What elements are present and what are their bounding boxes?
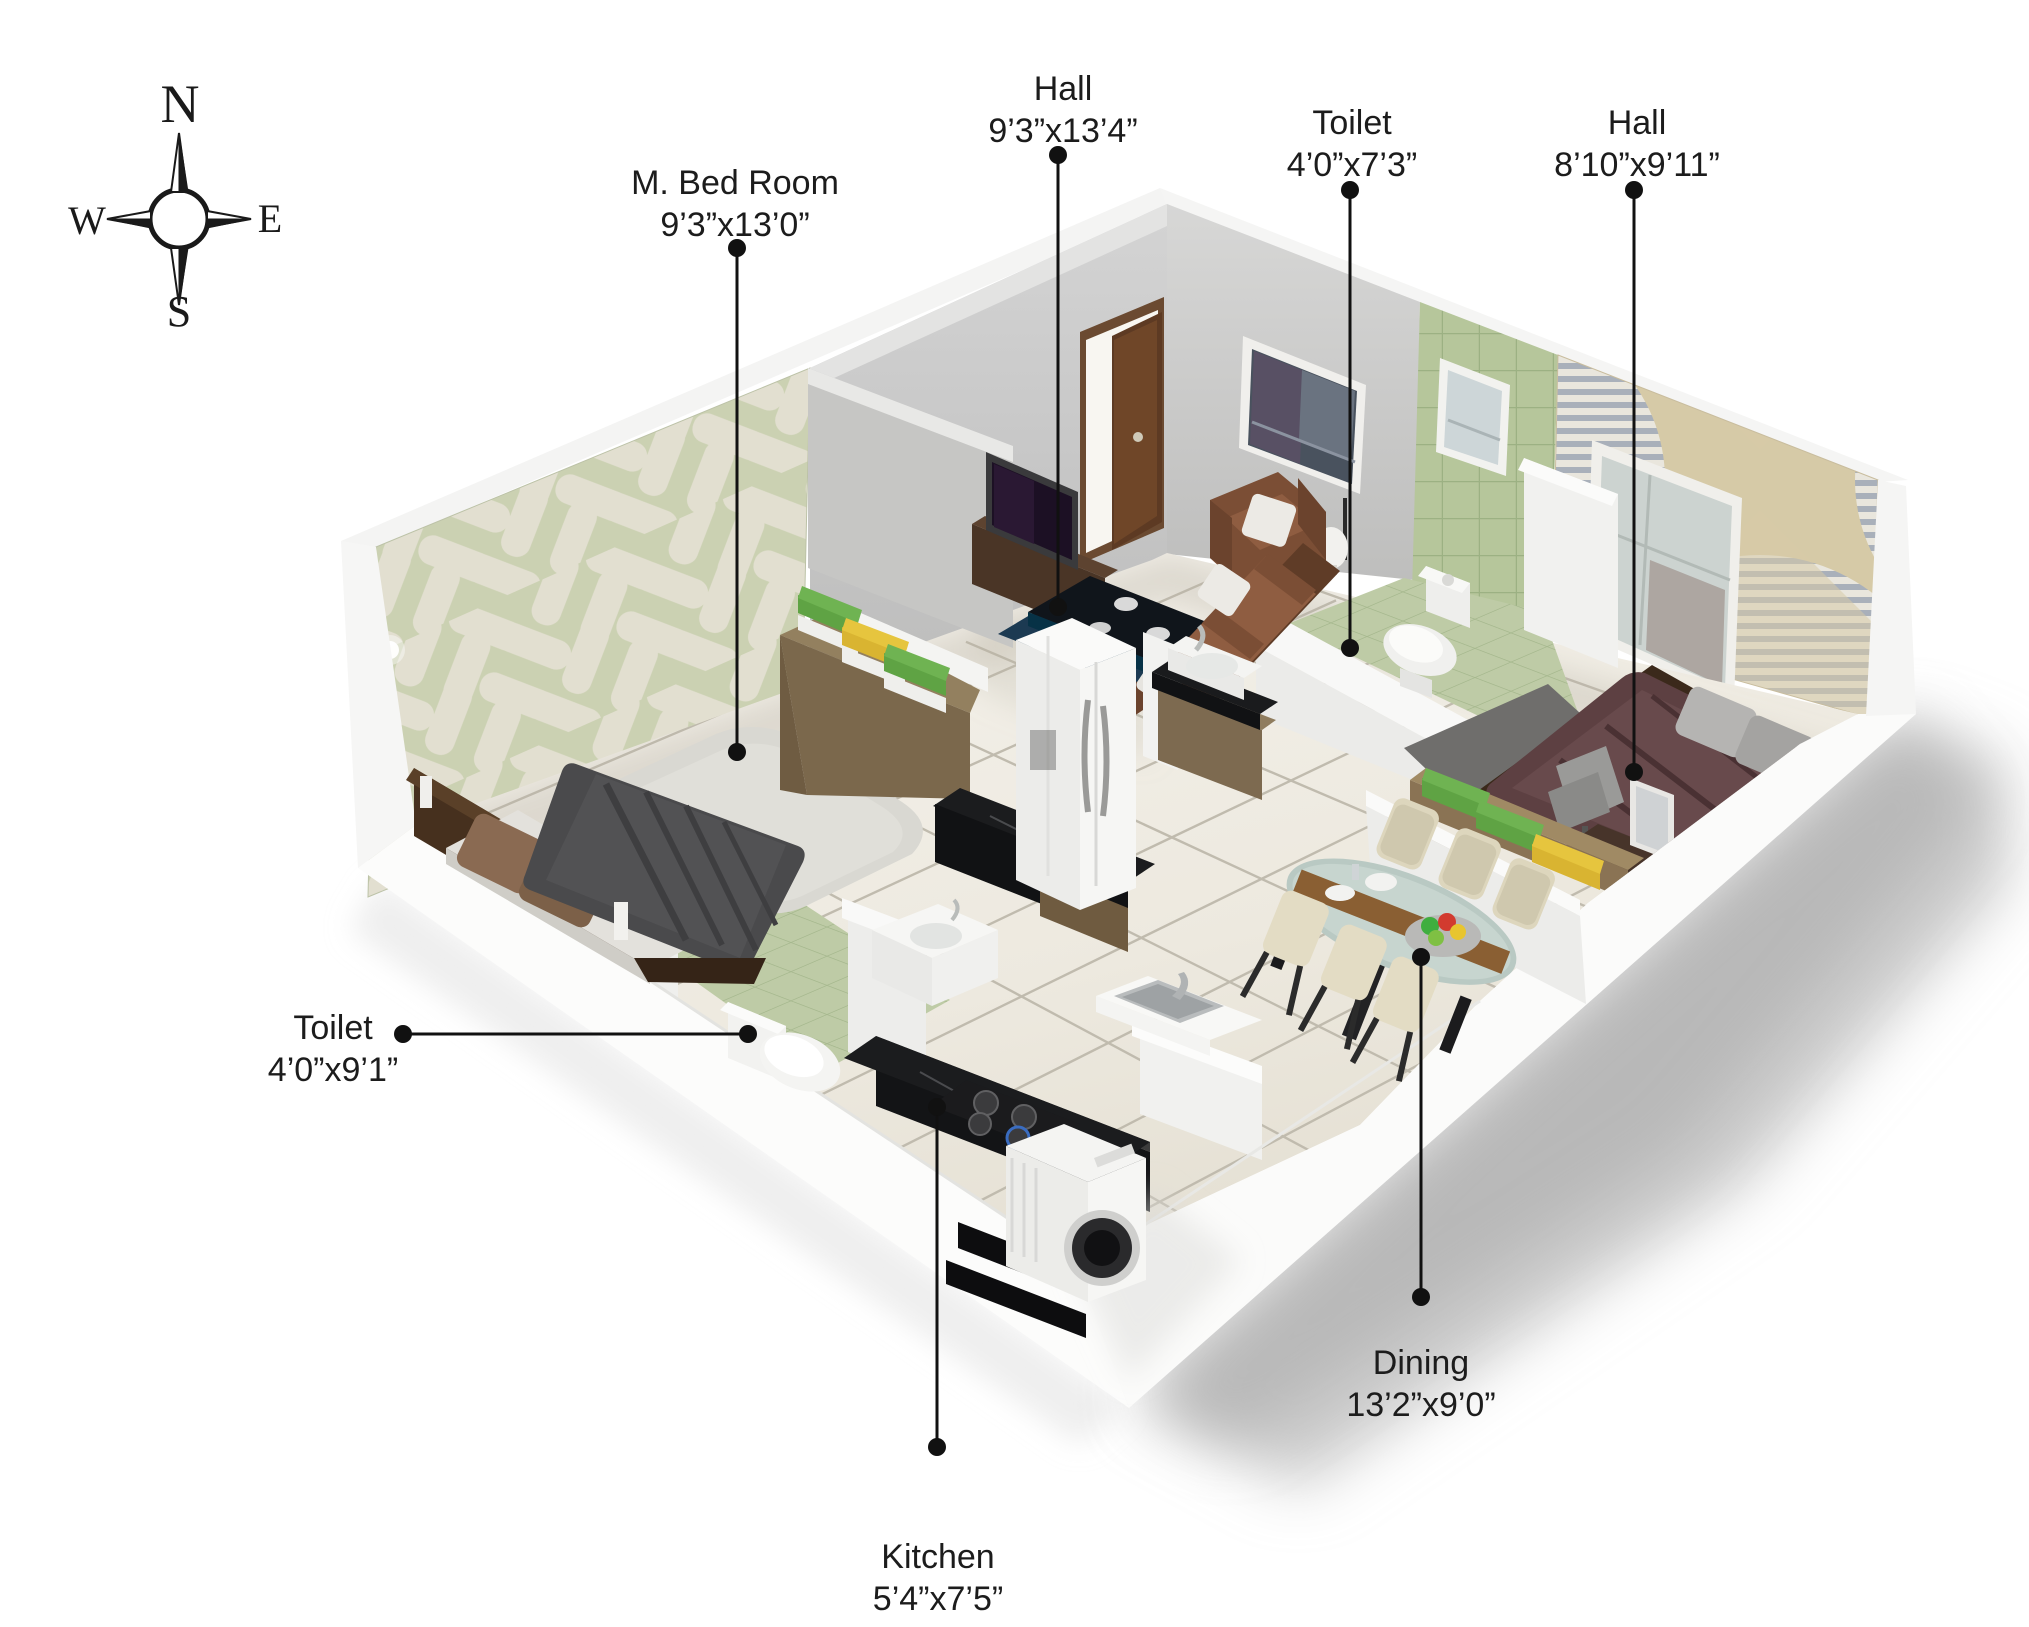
svg-text:Dining: Dining [1373,1344,1469,1382]
svg-text:13’2”x9’0”: 13’2”x9’0” [1346,1386,1495,1424]
svg-text:Hall: Hall [1608,104,1667,142]
svg-text:Kitchen: Kitchen [881,1538,994,1576]
svg-text:4’0”x7’3”: 4’0”x7’3” [1287,146,1417,184]
svg-text:5’4”x7’5”: 5’4”x7’5” [873,1580,1003,1618]
svg-text:Toilet: Toilet [1312,104,1392,142]
svg-text:W: W [68,198,106,243]
svg-text:4’0”x9’1”: 4’0”x9’1” [268,1051,398,1089]
svg-text:Toilet: Toilet [293,1009,373,1047]
svg-text:9’3”x13’4”: 9’3”x13’4” [988,112,1137,150]
svg-text:N: N [161,74,200,134]
svg-text:M. Bed Room: M. Bed Room [631,164,839,202]
svg-text:9’3”x13’0”: 9’3”x13’0” [660,206,809,244]
svg-text:S: S [167,287,191,336]
svg-text:8’10”x9’11”: 8’10”x9’11” [1554,146,1720,184]
svg-text:Hall: Hall [1034,70,1093,108]
svg-text:E: E [258,196,282,241]
